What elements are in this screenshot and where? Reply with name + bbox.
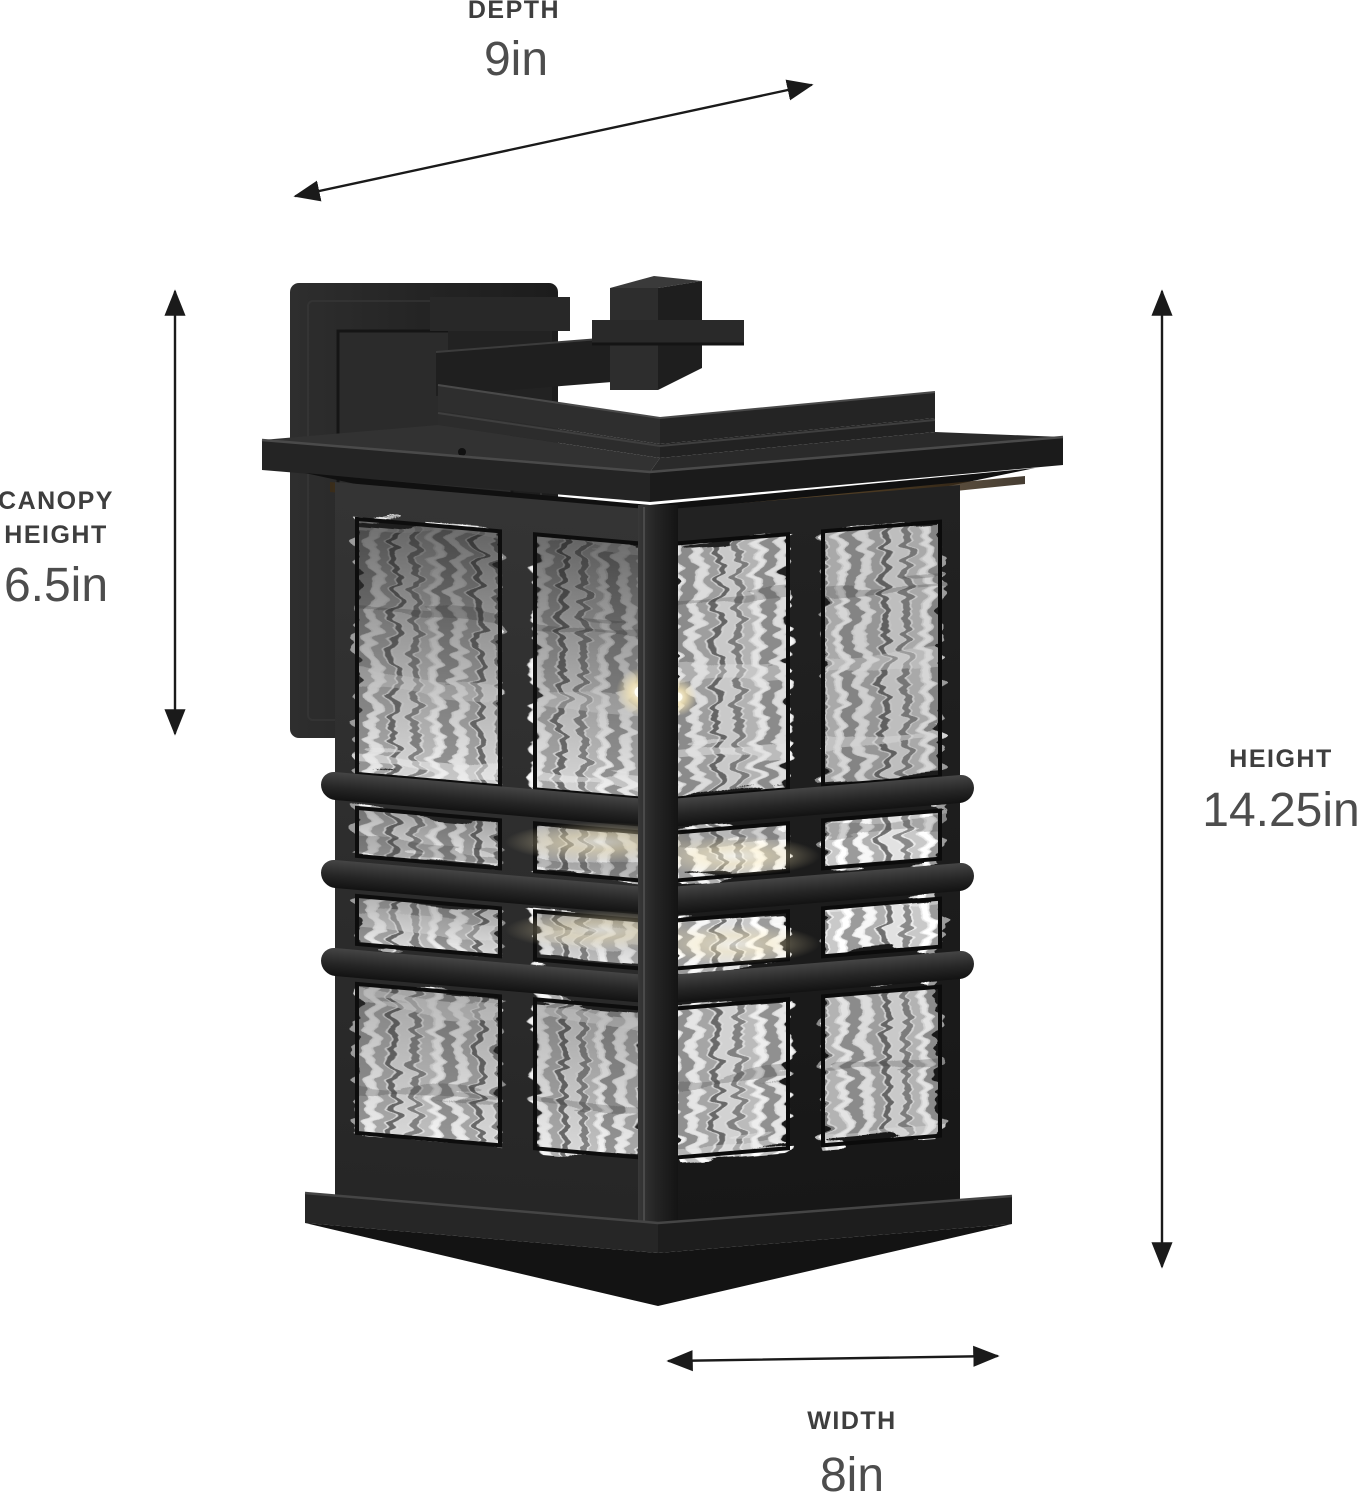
canopy-height-value: 6.5in (4, 558, 108, 613)
canopy-height-label-line2: HEIGHT (4, 521, 107, 550)
roof-finial (592, 276, 744, 390)
glass-panel-bottom (357, 984, 645, 1158)
product-dimension-diagram: DEPTH 9in CANOPY HEIGHT 6.5in HEIGHT 14.… (0, 0, 1362, 1500)
width-value: 8in (820, 1448, 884, 1500)
depth-arrow (296, 85, 811, 196)
depth-label: DEPTH (468, 0, 560, 25)
canopy-height-label-line1: CANOPY (0, 487, 114, 516)
height-value: 14.25in (1202, 783, 1359, 838)
width-label: WIDTH (807, 1407, 896, 1436)
width-arrow (669, 1356, 997, 1361)
glass-panel (357, 519, 645, 799)
lantern-illustration (0, 0, 1362, 1500)
corner-post (638, 505, 678, 1227)
height-label: HEIGHT (1229, 745, 1332, 774)
depth-value: 9in (484, 32, 548, 87)
